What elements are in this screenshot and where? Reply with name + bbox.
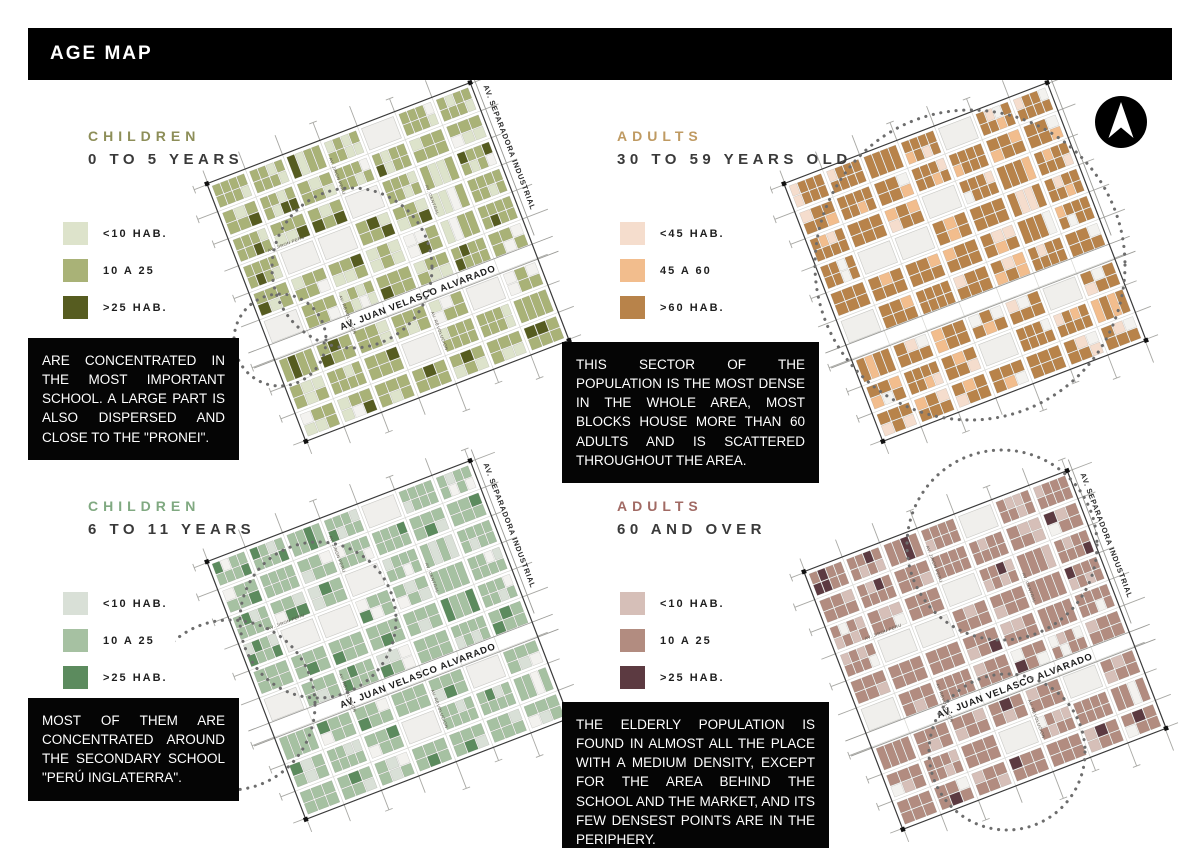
legend-swatch-mid bbox=[620, 629, 645, 652]
legend-row: >25 HAB. bbox=[620, 666, 725, 689]
description-adults-30-59: THIS SECTOR OF THE POPULATION IS THE MOS… bbox=[562, 342, 819, 483]
legend-label: 10 A 25 bbox=[103, 635, 155, 647]
panel-title-adults-60-over: ADULTS 60 AND OVER bbox=[617, 498, 766, 538]
legend-swatch-low bbox=[63, 222, 88, 245]
legend-label: 45 A 60 bbox=[660, 265, 712, 277]
legend-label: >25 HAB. bbox=[103, 302, 168, 314]
panel-group-label: CHILDREN bbox=[88, 128, 243, 144]
legend-row: 10 A 25 bbox=[620, 629, 725, 652]
panel-range-label: 60 AND OVER bbox=[617, 521, 766, 538]
legend-swatch-high bbox=[63, 666, 88, 689]
legend-row: <45 HAB. bbox=[620, 222, 725, 245]
panel-range-label: 30 TO 59 YEARS OLD bbox=[617, 151, 852, 168]
legend-label: <45 HAB. bbox=[660, 228, 725, 240]
legend-label: 10 A 25 bbox=[103, 265, 155, 277]
legend-row: 10 A 25 bbox=[63, 629, 168, 652]
legend-swatch-mid bbox=[63, 259, 88, 282]
legend-children-0-5: <10 HAB. 10 A 25 >25 HAB. bbox=[63, 222, 168, 333]
panel-range-label: 0 TO 5 YEARS bbox=[88, 151, 243, 168]
description-adults-60-over: THE ELDERLY POPULATION IS FOUND IN ALMOS… bbox=[562, 702, 829, 848]
legend-label: 10 A 25 bbox=[660, 635, 712, 647]
legend-swatch-high bbox=[620, 666, 645, 689]
map-adults-60-over: AV. JUAN VELASCO ALVARADOAV. SEPARADORA … bbox=[765, 438, 1200, 848]
legend-label: >25 HAB. bbox=[660, 672, 725, 684]
legend-swatch-mid bbox=[620, 259, 645, 282]
legend-swatch-mid bbox=[63, 629, 88, 652]
legend-row: <10 HAB. bbox=[63, 222, 168, 245]
legend-adults-60-over: <10 HAB. 10 A 25 >25 HAB. bbox=[620, 592, 725, 703]
header-bar: AGE MAP bbox=[28, 28, 1172, 80]
legend-swatch-high bbox=[620, 296, 645, 319]
description-children-0-5: ARE CONCENTRATED IN THE MOST IMPORTANT S… bbox=[28, 338, 239, 460]
panel-group-label: ADULTS bbox=[617, 128, 852, 144]
legend-swatch-low bbox=[620, 592, 645, 615]
legend-row: <10 HAB. bbox=[63, 592, 168, 615]
panel-title-adults-30-59: ADULTS 30 TO 59 YEARS OLD bbox=[617, 128, 852, 168]
legend-row: 45 A 60 bbox=[620, 259, 725, 282]
page-title: AGE MAP bbox=[50, 43, 153, 65]
north-arrow-icon bbox=[1093, 94, 1149, 150]
legend-label: <10 HAB. bbox=[660, 598, 725, 610]
legend-label: <10 HAB. bbox=[103, 228, 168, 240]
legend-row: >60 HAB. bbox=[620, 296, 725, 319]
panel-group-label: ADULTS bbox=[617, 498, 766, 514]
legend-row: >25 HAB. bbox=[63, 296, 168, 319]
legend-swatch-low bbox=[620, 222, 645, 245]
legend-swatch-low bbox=[63, 592, 88, 615]
legend-label: >60 HAB. bbox=[660, 302, 725, 314]
legend-children-6-11: <10 HAB. 10 A 25 >25 HAB. bbox=[63, 592, 168, 703]
panel-title-children-0-5: CHILDREN 0 TO 5 YEARS bbox=[88, 128, 243, 168]
legend-row: >25 HAB. bbox=[63, 666, 168, 689]
panel-group-label: CHILDREN bbox=[88, 498, 255, 514]
age-map-poster: AV. JUAN VELASCO ALVARADOAV. SEPARADORA … bbox=[0, 0, 1200, 848]
legend-row: 10 A 25 bbox=[63, 259, 168, 282]
legend-swatch-high bbox=[63, 296, 88, 319]
legend-label: >25 HAB. bbox=[103, 672, 168, 684]
legend-row: <10 HAB. bbox=[620, 592, 725, 615]
description-children-6-11: MOST OF THEM ARE CONCENTRATED AROUND THE… bbox=[28, 698, 239, 801]
legend-adults-30-59: <45 HAB. 45 A 60 >60 HAB. bbox=[620, 222, 725, 333]
panel-title-children-6-11: CHILDREN 6 TO 11 YEARS bbox=[88, 498, 255, 538]
legend-label: <10 HAB. bbox=[103, 598, 168, 610]
panel-range-label: 6 TO 11 YEARS bbox=[88, 521, 255, 538]
